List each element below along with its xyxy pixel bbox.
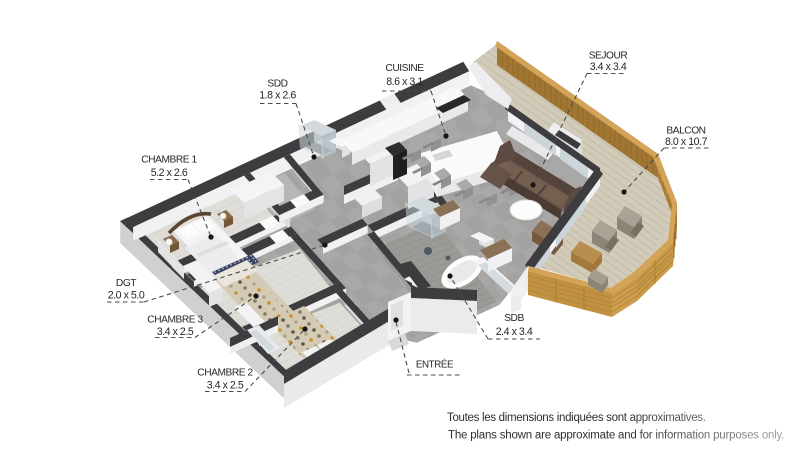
svg-text:2.0 x 5.0: 2.0 x 5.0 (108, 290, 145, 302)
svg-text:BALCON: BALCON (666, 126, 705, 137)
svg-text:CHAMBRE 3: CHAMBRE 3 (147, 315, 203, 326)
svg-text:CUISINE: CUISINE (385, 63, 424, 74)
svg-text:1.8 x 2.6: 1.8 x 2.6 (259, 90, 296, 102)
svg-text:2.4 x 3.4: 2.4 x 3.4 (496, 326, 533, 338)
svg-text:8.6 x 3.1: 8.6 x 3.1 (386, 76, 423, 88)
svg-text:CHAMBRE 2: CHAMBRE 2 (197, 368, 253, 379)
svg-text:CHAMBRE 1: CHAMBRE 1 (141, 155, 197, 166)
svg-text:8.0 x 10.7: 8.0 x 10.7 (665, 136, 708, 148)
svg-text:SDB: SDB (504, 313, 524, 324)
svg-text:3.4 x 2.5: 3.4 x 2.5 (207, 380, 244, 392)
svg-text:SEJOUR: SEJOUR (589, 51, 628, 62)
svg-text:SDD: SDD (267, 79, 287, 90)
svg-text:3.4 x 2.5: 3.4 x 2.5 (157, 326, 194, 338)
svg-text:3.4 x 3.4: 3.4 x 3.4 (590, 61, 627, 73)
svg-text:DGT: DGT (116, 278, 136, 289)
svg-text:ENTRÉE: ENTRÉE (416, 360, 454, 371)
svg-text:5.2 x 2.6: 5.2 x 2.6 (151, 167, 188, 179)
